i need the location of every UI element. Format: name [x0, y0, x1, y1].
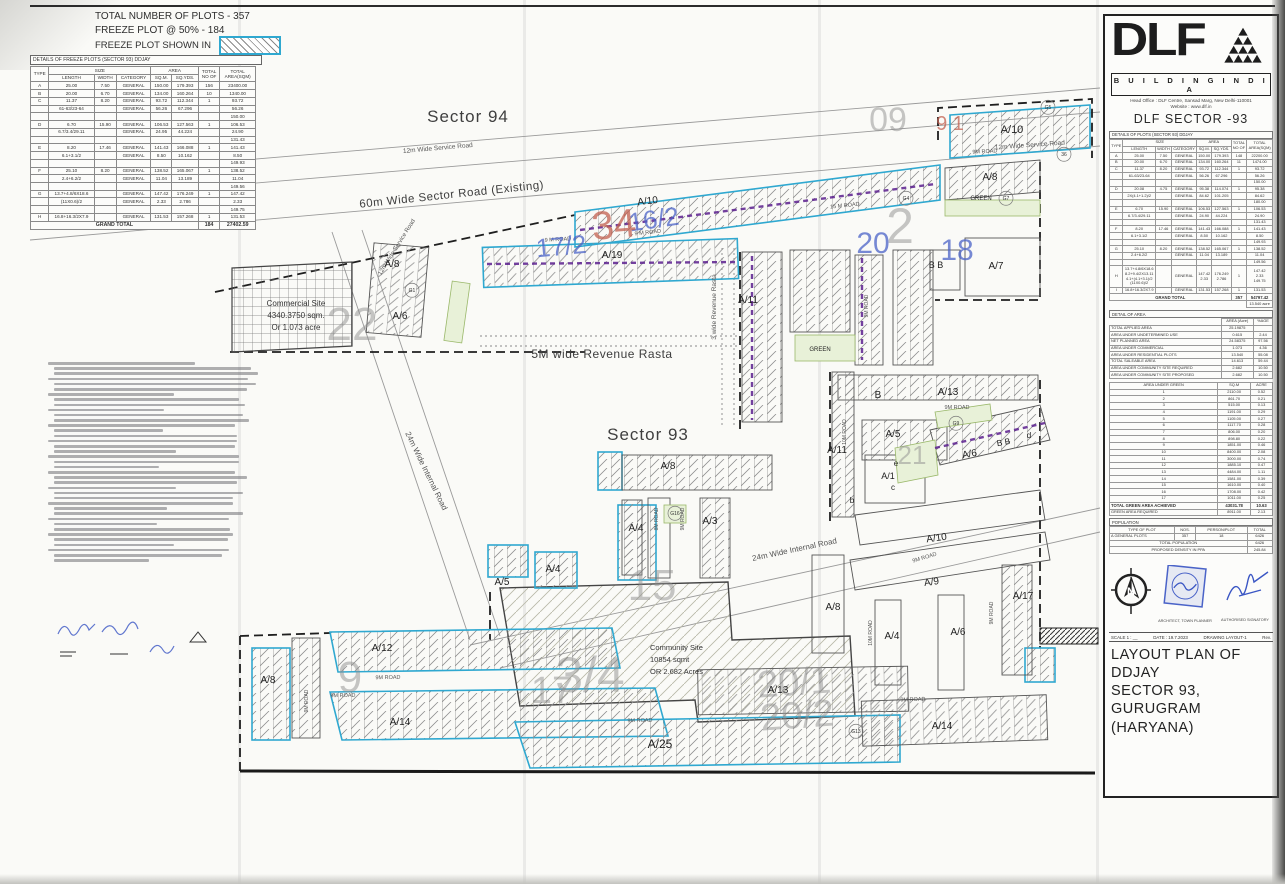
notes-text-line [54, 398, 239, 401]
table-row: 61117.700.28 [1110, 422, 1273, 429]
col-width: WIDTH [1155, 146, 1171, 153]
plan-label: Commercial Site [267, 299, 326, 308]
grand-total-area: 54797.42 [1247, 294, 1273, 301]
plan-label: A/10 [1001, 124, 1024, 136]
notes-text-line [54, 419, 249, 422]
population-total: 6426 [1247, 540, 1273, 547]
notes-text-line [54, 492, 243, 495]
table-row: 149.93 [31, 159, 256, 167]
table-row: 2X(4.1+1.2)/2GENERAL 84.62101.20584.62 [1110, 193, 1273, 200]
plan-label: A/8 [982, 172, 997, 183]
table-row: C11.378.20GENERAL 93.72112.344193.72 [1110, 166, 1273, 173]
col-category: CATEGORY [116, 74, 151, 82]
drawing-number: DRAWING LAYOUT-1 [1203, 635, 1246, 640]
table-row: (11X0.6)/2GENERAL 2.332.7862.33 [31, 198, 256, 206]
notes-text-line [54, 435, 237, 438]
notes-text-line [54, 476, 247, 479]
signatory: AUTHORISED SIGNATORY [1219, 566, 1271, 622]
architect-stamp: ARCHITECT, TOWN PLANNER [1158, 565, 1212, 623]
dlf-triangle-logo-icon [1215, 20, 1271, 70]
table-row: 7806.000.20 [1110, 429, 1273, 436]
green-table: AREA UNDER GREEN SQ.M ACRE 12110.000.52 … [1109, 382, 1273, 517]
panel-sector-title: DLF SECTOR -93 [1105, 112, 1277, 126]
col-total-area: TOTAL AREA(SQM) [220, 67, 256, 82]
table-row: E8.2017.46GENERAL 141.43166.0881141.43 [31, 144, 256, 152]
table-row: 61-63/23-64GENERAL 56.2667.29656.26 [1110, 173, 1273, 180]
plan-label: 10854 sqmt [650, 655, 690, 664]
plan-label: OR 2.682 Acres [650, 667, 703, 676]
plan-label: Sector 93 [607, 425, 689, 444]
col-pct: %AGE [1253, 319, 1272, 326]
table-row: 150.00 [31, 113, 256, 121]
table-row: 2861.700.21 [1110, 396, 1273, 403]
density-value: 245.84 [1247, 547, 1273, 554]
notes-text-line [54, 429, 163, 432]
building-india-strip: B U I L D I N G I N D I A [1111, 73, 1271, 96]
col-sqyds: SQ.YDS. [172, 74, 199, 82]
table-row: B20.006.70GENERAL 134.00160.264101340.00 [31, 90, 256, 98]
plan-label: 09 [869, 101, 907, 139]
date-value: DATE : 19.7.2023 [1153, 635, 1188, 640]
table-row: C11.378.20GENERAL 93.72112.344193.72 [31, 97, 256, 105]
table-row: 6.1+3.1/2GENERAL 8.5010.1628.50 [31, 152, 256, 160]
plan-label: G9 [953, 421, 960, 427]
table-row: 180.00 [1110, 199, 1273, 206]
green-required-label: GREEN AREA REQUIRED [1110, 509, 1218, 516]
density-row: PROPOSED DENSITY IN PPA 245.84 [1110, 547, 1273, 554]
population-total-label: TOTAL POPULATION [1110, 540, 1248, 547]
table-row: AREA UNDER COMMERCIAL1.0734.36 [1110, 345, 1273, 352]
plan-label: 2 [886, 198, 914, 254]
plan-label: G13 [851, 729, 861, 735]
plan-label: A/4 [628, 523, 643, 534]
grand-total-row: GRAND TOTAL 184 27402.59 [31, 221, 256, 230]
plan-label: c [891, 483, 895, 492]
plan-label: A/14 [932, 721, 953, 732]
plan-label: 24m Wide Internal Road [751, 536, 837, 563]
plots-table-body: A25.007.50GENERAL 150.00179.39314822200.… [1110, 153, 1273, 294]
plan-label: A/8 [825, 602, 840, 613]
scan-right-edge [1272, 0, 1285, 884]
plan-label: 36 [1061, 152, 1067, 158]
grand-total-area: 27402.59 [220, 221, 256, 230]
architect-stamp-icon [1162, 565, 1208, 613]
notes-text-line [54, 450, 176, 453]
table-row: D6.7015.90GENERAL 106.53127.5631106.53 [31, 121, 256, 129]
col-total-no: TOTAL NO OF [198, 67, 220, 82]
notes-text-line [54, 497, 233, 500]
dlf-logo-word: DLF [1111, 20, 1204, 59]
plan-label: A/6 [392, 311, 407, 322]
notes-text-line [48, 362, 195, 365]
plan-label: A/6 [961, 448, 978, 462]
table-row: 6.7/3.4/29.11GENERAL 24.9544.22424.90 [31, 128, 256, 136]
plan-label: 8M ROAD [654, 507, 660, 530]
plan-label: A/13 [938, 387, 959, 398]
svg-text:N: N [1127, 586, 1135, 598]
plan-label: A/7 [988, 261, 1003, 272]
plan-label: d [1027, 431, 1031, 440]
plan-label: GREEN [809, 347, 830, 353]
notes-text-line [54, 445, 235, 448]
dense-hatch-bar [1040, 628, 1098, 644]
table-row: I16.8+16.3/2X7.9GENERAL 131.53157.268113… [1110, 287, 1273, 294]
plan-label: 9M ROAD [304, 689, 310, 712]
green-required-sqm: 8911.00 [1218, 509, 1251, 516]
table-row: E6.7015.90GENERAL 106.53127.5631106.53 [1110, 206, 1273, 213]
plan-label: A/5 [885, 429, 900, 440]
plan-label: 60m Wide Sector Road (Existing) [359, 179, 545, 210]
table-row: 121885.100.47 [1110, 462, 1273, 469]
plan-label: Or 1.073 acre [272, 323, 321, 332]
plan-label: A/19 [602, 250, 623, 261]
plan-label: 20/2 [759, 693, 836, 740]
freeze-legend: FREEZE PLOT SHOWN IN [95, 36, 281, 55]
col-length: LENGTH [49, 74, 94, 82]
table-row: 8898.800.22 [1110, 436, 1273, 443]
scanned-layout-sheet: Sector 94Sector 9360m Wide Sector Road (… [0, 0, 1285, 884]
green-required-row: GREEN AREA REQUIRED 8911.00 2.13 [1110, 509, 1273, 516]
col-sqm: SQ.M. [1197, 146, 1212, 153]
table-row: AREA UNDER COMMUNITY SITE PROPOSED2.6821… [1110, 372, 1273, 379]
drawing-title: LAYOUT PLAN OF DDJAY SECTOR 93, GURUGRAM… [1109, 642, 1273, 737]
table-row: 149.75 [31, 206, 256, 214]
plan-label: 18 [940, 234, 973, 267]
col-size: SIZE [49, 67, 151, 75]
area-detail-body: TOTAL APPLIED AREA25.19875 AREA UNDER UN… [1110, 325, 1273, 378]
plan-label: G16 [670, 511, 680, 517]
freeze-table: TYPE SIZE AREA TOTAL NO OF TOTAL AREA(SQ… [30, 66, 256, 230]
table-row: 61-63/23-64GENERAL 56.2667.29656.26 [31, 105, 256, 113]
col-sqyds: SQ.YDS. [1212, 146, 1231, 153]
col-total-area: TOTAL AREA(SQM) [1247, 139, 1273, 152]
green-table-body: 12110.000.52 2861.700.21 3515.000.13 411… [1110, 389, 1273, 502]
plan-label: A/4 [884, 631, 899, 642]
plan-label: 9M ROAD [375, 675, 400, 681]
signatory-label: AUTHORISED SIGNATORY [1219, 618, 1271, 622]
notes-text-line [48, 455, 239, 458]
plan-label: 9M ROAD [627, 718, 652, 724]
plan-label: A/8 [384, 259, 399, 270]
notes-text-line [54, 481, 237, 484]
notes-text-line [48, 518, 229, 521]
revision-label: Rev. [1262, 635, 1271, 640]
summary-line1: TOTAL NUMBER OF PLOTS - 357 [95, 11, 250, 22]
population-title: POPULATION [1109, 518, 1273, 526]
notes-text-line [54, 372, 258, 375]
plan-label: 4340.3750 sqm. [267, 311, 324, 320]
plan-label: 9M ROAD [989, 601, 995, 624]
plan-label: 15 [628, 561, 677, 610]
plots-table: TYPE SIZE AREA TOTAL NO OF TOTAL AREA(SQ… [1109, 139, 1273, 308]
plan-label: 3 wide Revenue Rasta [711, 274, 718, 340]
scale-value: SCALE 1 : __ [1111, 635, 1138, 640]
south-boundary-line [240, 771, 1095, 773]
dlf-logo: DLF [1105, 16, 1277, 70]
approval-row: N ARCHITECT, TOWN PLANNER [1109, 558, 1273, 630]
notes-text-line [48, 502, 233, 505]
plan-label: A/10 [926, 532, 948, 546]
plan-label: G1 [409, 288, 416, 294]
plan-label: Sector 94 [427, 107, 509, 126]
notes-text-line [54, 528, 230, 531]
col-type: TYPE [31, 67, 49, 82]
notes-text-line [54, 404, 245, 407]
title-panel: DLF B U I L D I N G I N D I A Head Offic… [1103, 14, 1279, 798]
table-row: 141581.000.39 [1110, 476, 1273, 483]
table-row: 2.4+6.2/2GENERAL 11.0413.18911.04 [31, 175, 256, 183]
notes-text-line [48, 378, 248, 381]
plan-label: A/17 [1013, 591, 1034, 602]
col-type: TYPE [1110, 139, 1123, 152]
grand-total-acre-row: 13.540 acre [1110, 301, 1273, 308]
plan-label: A/12 [372, 643, 393, 654]
table-row: 149.56 [1110, 259, 1273, 266]
table-row: 3515.000.13 [1110, 402, 1273, 409]
notes-text-line [54, 559, 149, 562]
plan-label: A/1 [881, 471, 895, 481]
plan-label: GREEN [970, 196, 991, 202]
signature-icon [1219, 566, 1271, 612]
population-table: TYPE OF PLOT NOS. PERSON/PLOT TOTAL A GE… [1109, 526, 1273, 554]
plan-label: 9M ROAD [680, 507, 686, 530]
notes-text-line [54, 507, 167, 510]
plan-label: A/6 [950, 627, 965, 638]
grand-total-acre: 13.540 acre [1247, 301, 1273, 308]
table-row: G13.7+4.8/6X18.6GENERAL 147.42176.249114… [31, 190, 256, 198]
plan-label: A/11 [738, 295, 758, 306]
notes-text-line [54, 414, 243, 417]
area-detail-title: DETAIL OF AREA [1109, 310, 1273, 318]
plan-label: 9 [338, 653, 362, 702]
plan-label: A/4 [545, 564, 560, 575]
freeze-legend-label: FREEZE PLOT SHOWN IN [95, 40, 211, 51]
plan-label: B [875, 390, 882, 401]
notes-text-line [54, 538, 228, 541]
table-row: F25.108.20GENERAL 138.52165.0671138.52 [31, 167, 256, 175]
table-row: 134484.001.11 [1110, 469, 1273, 476]
plan-label: 9M ROAD [900, 697, 925, 704]
plan-label: 22 [326, 298, 377, 350]
plan-label: A/9 [923, 576, 940, 589]
table-row: 51105.000.27 [1110, 416, 1273, 423]
population-total-row: TOTAL POPULATION 6426 [1110, 540, 1273, 547]
notes-text-line [48, 533, 233, 536]
table-row: 131.43 [31, 136, 256, 144]
table-row: F8.2017.46GENERAL 141.43166.0881141.43 [1110, 226, 1273, 233]
plan-label: 9M ROAD [864, 294, 870, 317]
signature-scribbles [50, 612, 260, 672]
plan-label: A/3 [702, 516, 717, 527]
plan-label: A/8 [660, 461, 675, 472]
table-row: 91851.000.46 [1110, 442, 1273, 449]
plan-label: b [850, 496, 855, 505]
notes-text-line [48, 424, 235, 427]
plan-label: 10M ROAD [842, 419, 848, 445]
freeze-table-title: DETAILS OF FREEZE PLOTS (SECTOR 93) DDJA… [30, 55, 262, 65]
notes-text-line [48, 393, 174, 396]
population-per-plot: 18 [1196, 534, 1247, 541]
head-office-address: Head Office : DLF Centre, Sansad Marg, N… [1105, 98, 1277, 110]
col-category: CATEGORY [1172, 146, 1197, 153]
plan-label: A/25 [648, 737, 673, 751]
table-row: 2.4+6.2/2GENERAL 11.0413.18911.04 [1110, 253, 1273, 260]
plan-label: 17/2 [535, 229, 588, 263]
table-row: D20.084.75GENERAL 95.38114.074195.38 [1110, 186, 1273, 193]
plan-label: 9 1 [936, 113, 964, 135]
plan-label: 9M ROAD [912, 552, 938, 565]
plan-label: 10M ROAD [868, 620, 874, 646]
table-row: AREA UNDER COMMUNITY SITE REQUIRED2.6821… [1110, 365, 1273, 372]
grand-total-no: 357 [1231, 294, 1247, 301]
notes-text-line [48, 471, 235, 474]
north-arrow-icon: N [1111, 568, 1151, 620]
summary-line2: FREEZE PLOT @ 50% - 184 [95, 25, 224, 36]
col-length: LENGTH [1123, 146, 1155, 153]
plots-table-title: DETAILS OF PLOTS (SECTOR 93) DDJAY [1109, 131, 1273, 139]
plan-label: Community Site [650, 643, 703, 652]
notes-text-line [54, 388, 247, 391]
notes-text-line [48, 440, 237, 443]
col-total-no: TOTAL NO OF [1231, 139, 1247, 152]
plot-summary: TOTAL NUMBER OF PLOTS - 357 FREEZE PLOT … [95, 10, 250, 37]
table-row: 151610.000.40 [1110, 482, 1273, 489]
table-row: 131.43 [1110, 219, 1273, 226]
density-label: PROPOSED DENSITY IN PPA [1110, 547, 1248, 554]
table-row: 6.1+3.1/2GENERAL 8.5010.1628.50 [1110, 233, 1273, 240]
table-row: 149.56 [31, 183, 256, 191]
table-row: 113000.000.74 [1110, 456, 1273, 463]
scan-bottom-edge [0, 874, 1285, 884]
notes-text-line [54, 512, 243, 515]
table-row: 6.7/3.4/29.11GENERAL 24.9044.22424.90 [1110, 213, 1273, 220]
notes-text-line [54, 383, 256, 386]
col-area: AREA [151, 67, 198, 75]
plan-label: 24m Wide Internal Road [403, 430, 449, 511]
col-sqm: SQ.M. [151, 74, 172, 82]
plan-label: 34 [590, 201, 638, 249]
col-width: WIDTH [94, 74, 116, 82]
table-row: H16.8+16.3/2X7.9GENERAL 131.53157.268113… [31, 213, 256, 221]
plan-label: 17 [531, 670, 573, 712]
table-row: 41191.000.29 [1110, 409, 1273, 416]
notes-text-line [54, 523, 157, 526]
freeze-table-body: A25.007.50GENERAL 150.00179.39315623400.… [31, 82, 256, 221]
architect-stamp-label: ARCHITECT, TOWN PLANNER [1158, 619, 1212, 623]
plan-label: 20 [856, 227, 889, 260]
table-row: 161708.000.42 [1110, 489, 1273, 496]
plan-label: G7 [1003, 196, 1010, 202]
plan-label: A/5 [494, 577, 509, 588]
table-row: 171011.000.25 [1110, 496, 1273, 503]
grand-total-label: GRAND TOTAL [1110, 294, 1232, 301]
table-row: 108400.002.08 [1110, 449, 1273, 456]
notes-text-line [54, 367, 251, 370]
plan-label: 5M wide Revenue Rasta [531, 347, 672, 361]
table-row: H13.7+4.8/6X18.6 8.2+9.4/2X13.11 4.1+(4.… [1110, 266, 1273, 287]
green-required-acre: 2.13 [1250, 509, 1272, 516]
notes-text-line [54, 554, 222, 557]
grand-total-label: GRAND TOTAL [31, 221, 199, 230]
notes-block [48, 362, 258, 612]
table-row: TOTAL APPLIED AREA25.19875 [1110, 325, 1273, 332]
notes-text-line [54, 466, 159, 469]
table-row: 149.93 [1110, 239, 1273, 246]
plan-label: G5 [1045, 105, 1052, 111]
notes-text-line [48, 409, 164, 412]
notes-text-line [54, 461, 239, 464]
scale-date-row: SCALE 1 : __ DATE : 19.7.2023 DRAWING LA… [1109, 632, 1273, 642]
plan-label: A/11 [827, 445, 847, 456]
notes-text-line [54, 544, 174, 547]
plan-label: A/14 [390, 717, 411, 728]
grand-total-no: 184 [198, 221, 220, 230]
notes-text-line [48, 549, 229, 552]
table-row: A25.007.50GENERAL 150.00179.39315623400.… [31, 82, 256, 90]
area-detail-table: AREA (Acre) %AGE TOTAL APPLIED AREA25.19… [1109, 318, 1273, 379]
plan-label: 9M ROAD [944, 405, 969, 411]
grand-total-row: GRAND TOTAL 357 54797.42 [1110, 294, 1273, 301]
plan-label: 21 [898, 440, 927, 470]
plan-label: A/8 [260, 675, 275, 686]
notes-text-line [48, 487, 176, 490]
freeze-hatch-swatch [219, 36, 281, 55]
table-row: 12110.000.52 [1110, 389, 1273, 396]
